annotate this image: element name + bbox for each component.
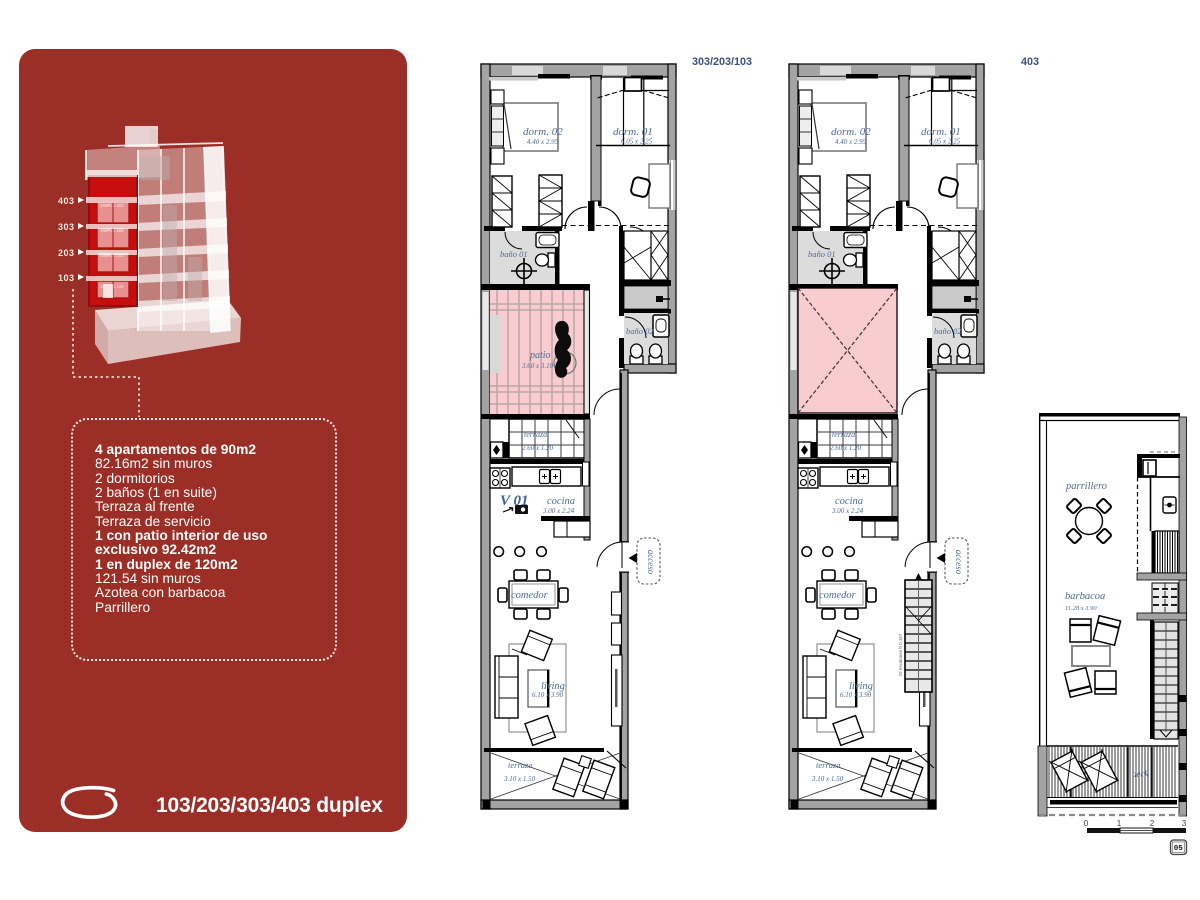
svg-text:patio: patio <box>529 350 551 361</box>
svg-text:2: 2 <box>1150 819 1155 828</box>
svg-text:1: 1 <box>1117 819 1122 828</box>
svg-text:403: 403 <box>1021 56 1039 68</box>
svg-text:3.60 x 3.10: 3.60 x 3.10 <box>521 362 554 370</box>
svg-text:0: 0 <box>1084 819 1089 828</box>
svg-text:3: 3 <box>1182 819 1187 828</box>
svg-text:cocina: cocina <box>547 496 575 507</box>
svg-text:3.00 x 2.24: 3.00 x 2.24 <box>542 507 575 515</box>
svg-text:barbacoa: barbacoa <box>1065 591 1105 602</box>
svg-text:22 escalones h 0.167: 22 escalones h 0.167 <box>898 633 903 676</box>
svg-text:303/203/103: 303/203/103 <box>692 56 752 68</box>
svg-text:3.00 x 2.24: 3.00 x 2.24 <box>831 507 864 515</box>
svg-text:parrillero: parrillero <box>1065 481 1107 492</box>
svg-text:11.28 x 3.90: 11.28 x 3.90 <box>1065 605 1097 612</box>
svg-text:deck: deck <box>1132 769 1149 779</box>
svg-text:cocina: cocina <box>835 496 863 507</box>
svg-text:05: 05 <box>1174 845 1184 853</box>
